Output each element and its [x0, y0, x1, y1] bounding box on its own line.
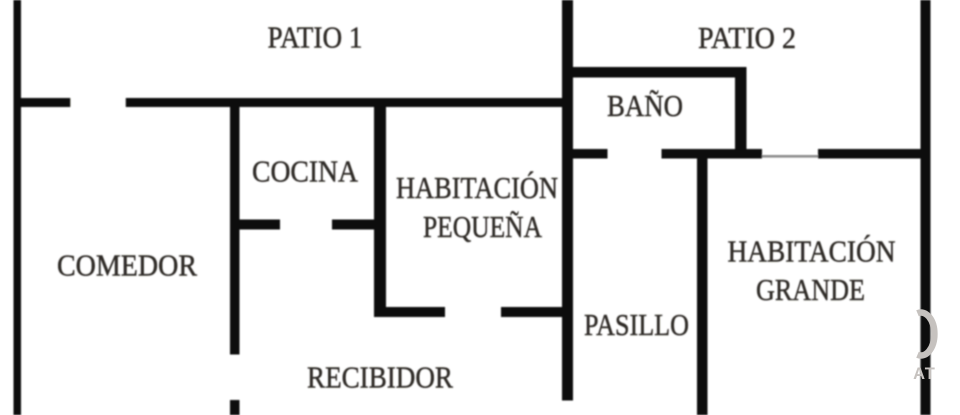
svg-text:BAÑO: BAÑO	[607, 88, 683, 123]
svg-text:PASILLO: PASILLO	[584, 307, 689, 342]
svg-text:PATIO 2: PATIO 2	[698, 20, 796, 55]
svg-text:HABITACIÓN: HABITACIÓN	[396, 170, 558, 205]
svg-text:GRANDE: GRANDE	[756, 272, 865, 307]
svg-text:PATIO 1: PATIO 1	[268, 20, 363, 55]
svg-text:COCINA: COCINA	[252, 154, 359, 189]
svg-text:HABITACIÓN: HABITACIÓN	[728, 234, 896, 269]
svg-text:RECIBIDOR: RECIBIDOR	[307, 360, 453, 395]
svg-text:COMEDOR: COMEDOR	[57, 248, 197, 283]
svg-text:AT: AT	[913, 365, 936, 383]
svg-text:PEQUEÑA: PEQUEÑA	[423, 209, 542, 244]
